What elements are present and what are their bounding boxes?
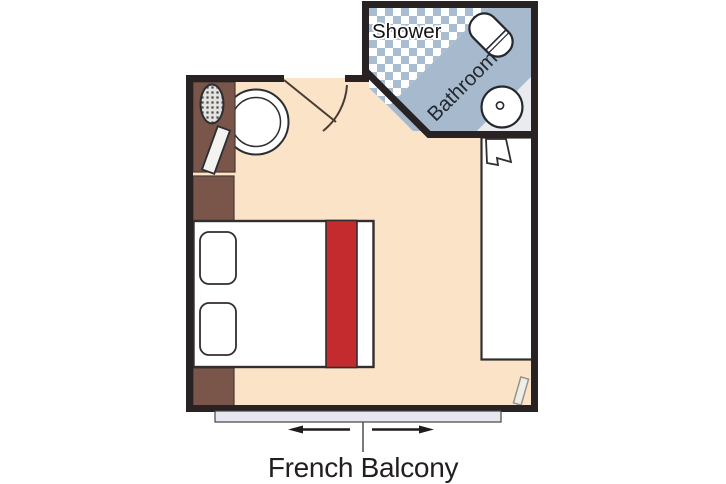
bed	[194, 221, 374, 368]
stateroom-floor-plan: Shower Bathroom French Balcony	[0, 0, 726, 484]
closet	[482, 138, 535, 360]
bed-runner	[326, 221, 357, 368]
sink-icon	[482, 87, 523, 128]
sliding-door-arrows-icon	[288, 426, 434, 434]
shower-label: Shower	[372, 20, 442, 43]
desk-chair-icon	[201, 85, 224, 124]
balcony-strip	[215, 411, 501, 422]
pillow	[200, 303, 236, 355]
nightstand-top	[193, 176, 234, 221]
pillow	[200, 232, 236, 284]
nightstand-bottom	[193, 368, 234, 408]
french-balcony-label: French Balcony	[268, 452, 459, 483]
floor-plan-canvas: Shower Bathroom French Balcony	[0, 0, 726, 484]
